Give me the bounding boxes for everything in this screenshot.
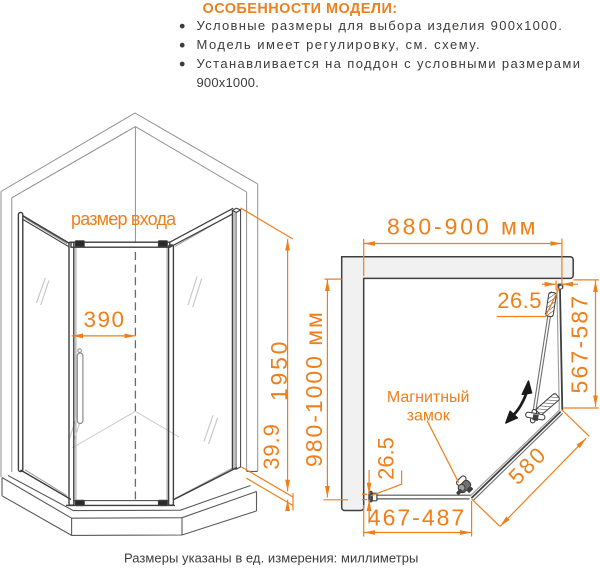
svg-text:26.5: 26.5 <box>374 437 399 480</box>
svg-text:900х1000.: 900х1000. <box>197 75 260 90</box>
svg-text:26.5: 26.5 <box>497 288 542 313</box>
svg-text:ОСОБЕННОСТИ МОДЕЛИ:: ОСОБЕННОСТИ МОДЕЛИ: <box>203 1 398 17</box>
svg-text:39.9: 39.9 <box>259 423 284 469</box>
svg-text:Устанавливается на поддон с ус: Устанавливается на поддон с условными ра… <box>197 56 582 71</box>
svg-text:880-900 мм: 880-900 мм <box>387 214 538 240</box>
svg-text:1950: 1950 <box>266 339 292 401</box>
svg-text:Магнитный: Магнитный <box>387 389 470 406</box>
svg-text:580: 580 <box>504 441 552 489</box>
svg-text:390: 390 <box>84 307 126 332</box>
svg-text:Размеры указаны в ед. измерени: Размеры указаны в ед. измерения: миллиме… <box>124 550 418 565</box>
svg-text:567-587: 567-587 <box>567 294 593 394</box>
svg-text:Условные размеры для выбора из: Условные размеры для выбора изделия 900х… <box>197 18 564 33</box>
svg-text:980-1000 мм: 980-1000 мм <box>301 310 327 467</box>
svg-text:467-487: 467-487 <box>368 505 466 531</box>
svg-text:замок: замок <box>407 408 451 425</box>
svg-text:Модель имеет регулировку, см.: Модель имеет регулировку, см. схему. <box>197 37 482 52</box>
svg-text:размер входа: размер входа <box>71 209 177 229</box>
